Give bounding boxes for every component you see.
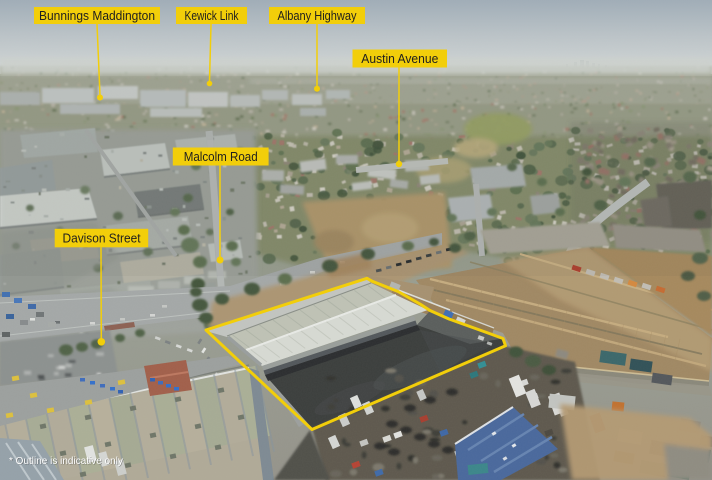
svg-text:* Outline is indicative only: * Outline is indicative only [9,456,123,467]
svg-text:Kewick Link: Kewick Link [185,8,239,23]
svg-text:Bunnings Maddington: Bunnings Maddington [39,8,155,23]
svg-text:Austin Avenue: Austin Avenue [361,51,438,66]
svg-text:Albany Highway: Albany Highway [278,8,357,23]
svg-text:Malcolm Road: Malcolm Road [184,149,258,164]
svg-text:Davison Street: Davison Street [63,231,141,246]
